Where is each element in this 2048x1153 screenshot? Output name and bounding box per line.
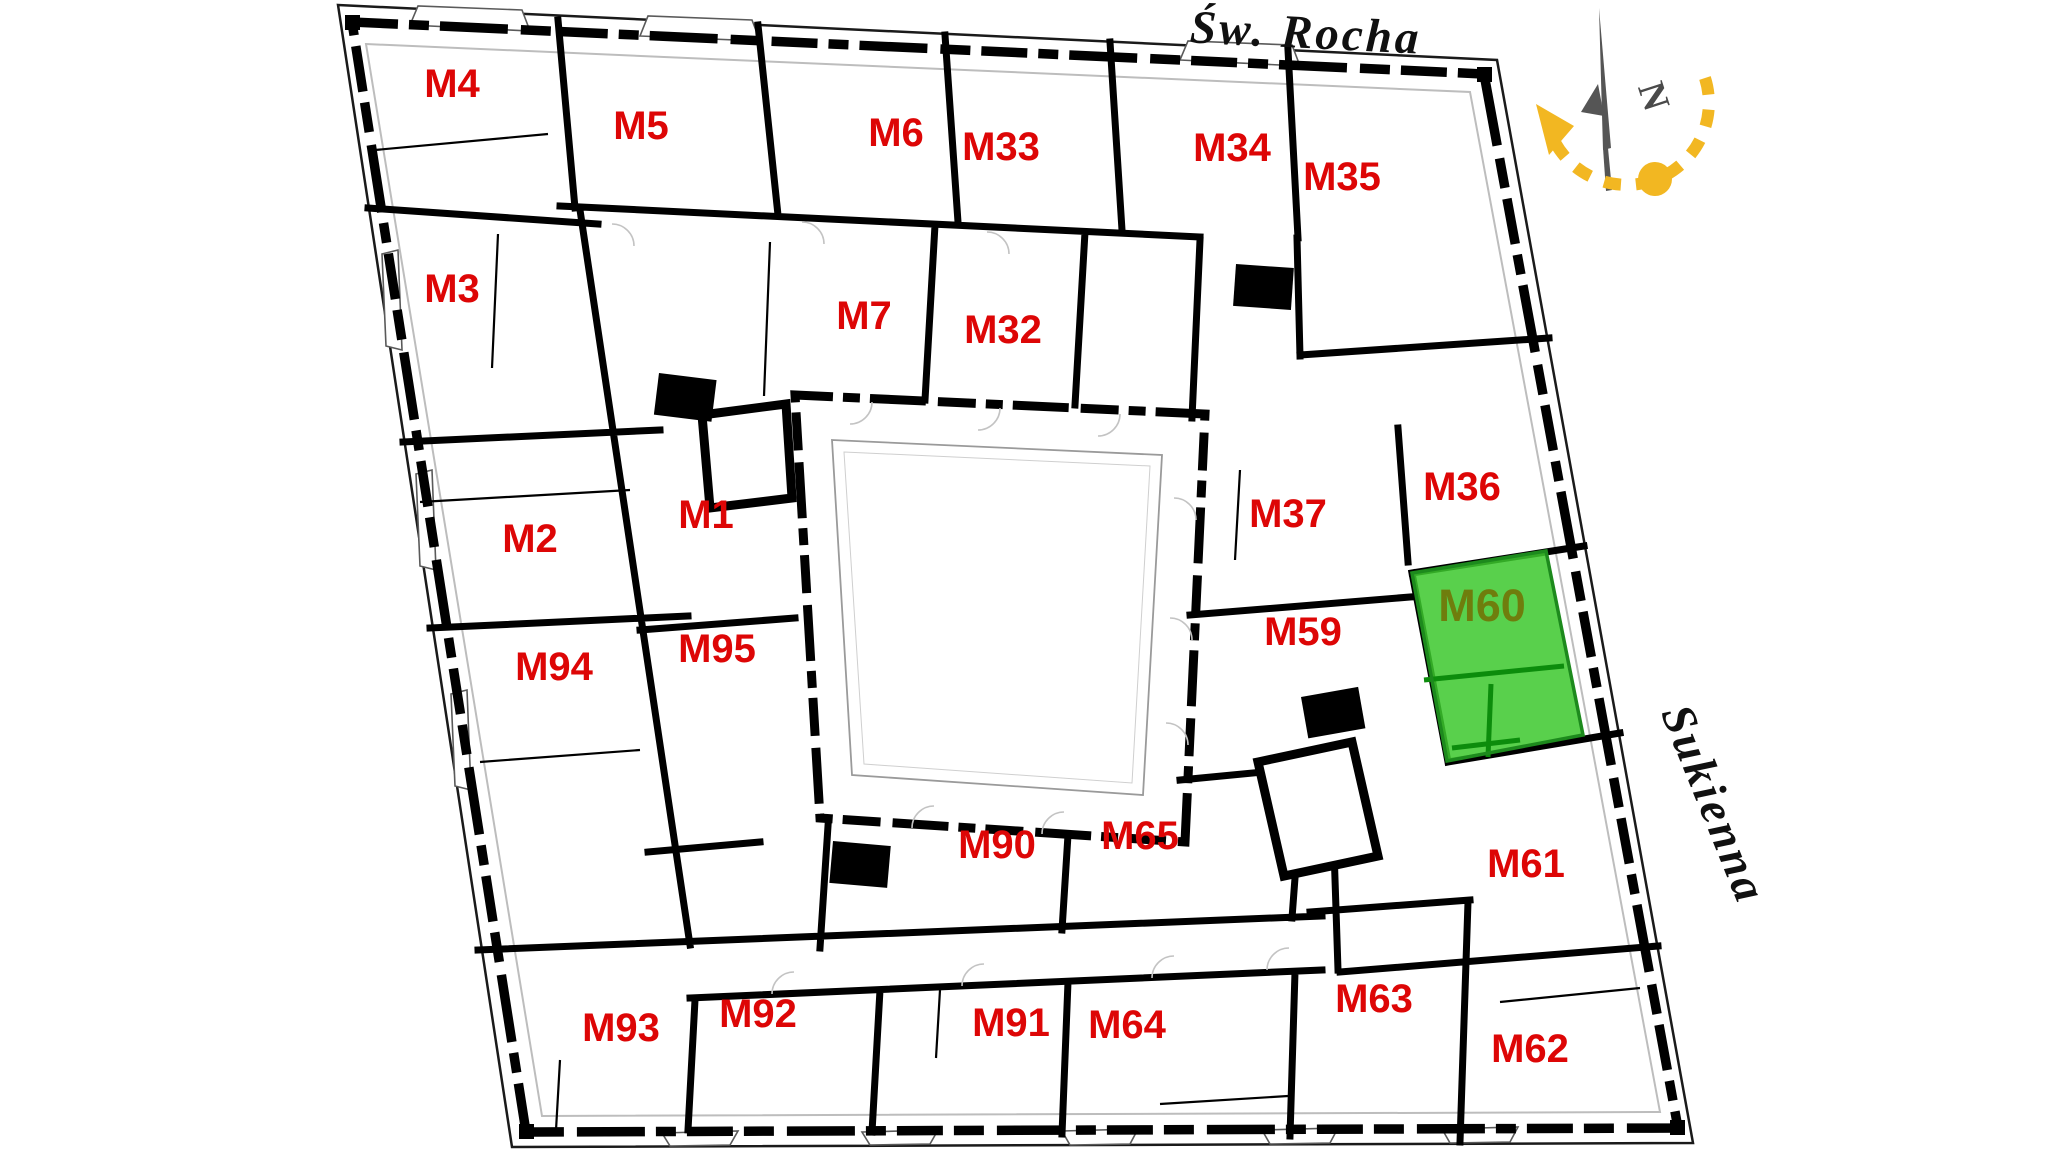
unit-label-M2[interactable]: M2 bbox=[502, 517, 558, 561]
unit-label-M3[interactable]: M3 bbox=[424, 267, 480, 311]
sun-arc bbox=[1551, 78, 1709, 185]
unit-label-M61[interactable]: M61 bbox=[1487, 842, 1565, 886]
compass: N bbox=[1536, 8, 1709, 196]
unit-label-M65[interactable]: M65 bbox=[1101, 814, 1179, 858]
unit-label-M59[interactable]: M59 bbox=[1264, 610, 1342, 654]
unit-label-M64[interactable]: M64 bbox=[1088, 1003, 1167, 1047]
unit-label-M4[interactable]: M4 bbox=[424, 62, 480, 106]
unit-label-M92[interactable]: M92 bbox=[719, 992, 797, 1036]
north-letter: N bbox=[1629, 77, 1677, 116]
unit-label-M91[interactable]: M91 bbox=[972, 1001, 1050, 1045]
unit-label-M63[interactable]: M63 bbox=[1335, 977, 1413, 1021]
unit-label-M93[interactable]: M93 bbox=[582, 1006, 660, 1050]
sun-dot bbox=[1638, 162, 1672, 196]
north-needle-fin bbox=[1581, 84, 1604, 116]
floor-plan-canvas: M4M5M6M33M34M35M3M7M32M36M37M2M1M60M59M9… bbox=[0, 0, 2048, 1153]
courtyard bbox=[795, 395, 1205, 842]
unit-label-M95[interactable]: M95 bbox=[678, 627, 756, 671]
unit-label-M62[interactable]: M62 bbox=[1491, 1027, 1569, 1071]
unit-label-M33[interactable]: M33 bbox=[962, 125, 1040, 169]
unit-label-M5[interactable]: M5 bbox=[613, 104, 669, 148]
unit-label-M94[interactable]: M94 bbox=[515, 645, 594, 689]
unit-label-M34[interactable]: M34 bbox=[1193, 126, 1272, 170]
unit-label-M6[interactable]: M6 bbox=[868, 111, 924, 155]
unit-label-M60[interactable]: M60 bbox=[1438, 580, 1526, 631]
unit-label-M35[interactable]: M35 bbox=[1303, 155, 1381, 199]
sun-arrowhead bbox=[1536, 104, 1574, 155]
unit-label-M1[interactable]: M1 bbox=[678, 493, 734, 537]
unit-label-M37[interactable]: M37 bbox=[1249, 492, 1327, 536]
street-label-right: Sukienna bbox=[1651, 698, 1778, 912]
unit-label-M7[interactable]: M7 bbox=[836, 294, 892, 338]
unit-label-M32[interactable]: M32 bbox=[964, 308, 1042, 352]
north-needle bbox=[1599, 8, 1611, 150]
unit-label-M36[interactable]: M36 bbox=[1423, 465, 1501, 509]
unit-label-M90[interactable]: M90 bbox=[958, 823, 1036, 867]
